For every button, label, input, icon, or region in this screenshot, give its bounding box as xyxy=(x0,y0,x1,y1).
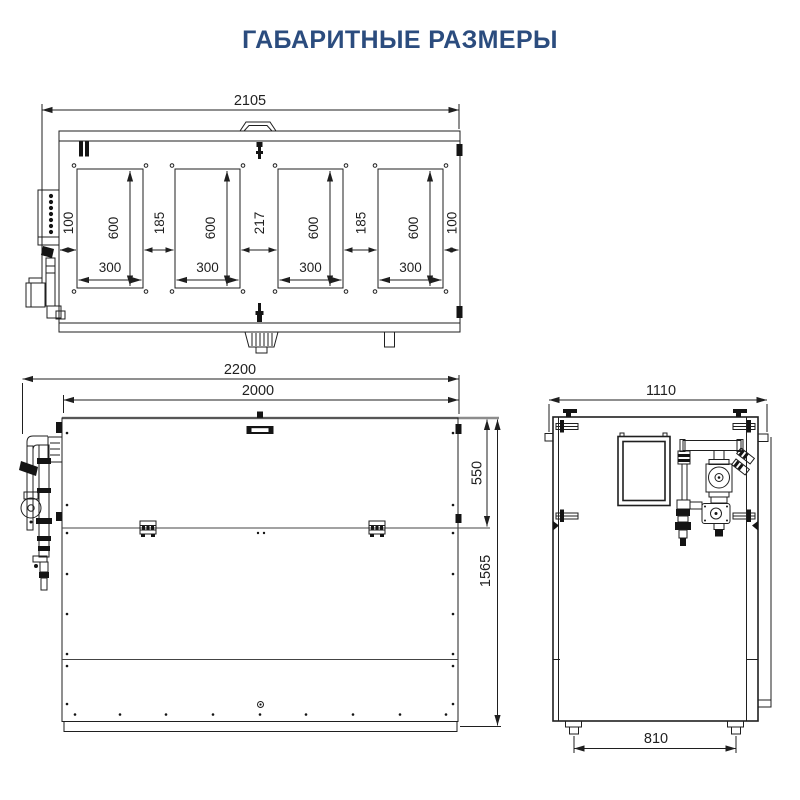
dim-label-550: 550 xyxy=(470,461,486,485)
dim-label-100: 100 xyxy=(445,212,460,235)
rear-stub xyxy=(758,700,771,707)
plinth xyxy=(64,722,457,732)
rear-tab xyxy=(758,434,768,442)
dim-label-185: 185 xyxy=(152,212,167,235)
burner-panel-1: 600 300 xyxy=(72,164,148,294)
dim-label-810: 810 xyxy=(644,731,668,747)
dim-label-600: 600 xyxy=(306,217,321,240)
dim-label-2000: 2000 xyxy=(242,383,274,399)
screw-dots xyxy=(66,432,455,716)
technical-drawing: 2105 xyxy=(0,0,800,800)
nameplate xyxy=(247,426,274,434)
dim-label-217: 217 xyxy=(252,212,267,235)
dim-label-2105: 2105 xyxy=(234,93,266,109)
dim-front-top-section: 550 xyxy=(470,420,488,527)
side-view: 1110 xyxy=(545,383,771,753)
dim-label-300: 300 xyxy=(99,260,122,275)
dim-label-1565: 1565 xyxy=(478,555,494,587)
burner-panel-4: 600 300 xyxy=(373,164,448,294)
dim-side-depth: 1110 xyxy=(549,383,767,432)
dim-front-overall: 2200 xyxy=(23,362,460,434)
side-body-outline xyxy=(553,417,758,721)
dim-side-feet: 810 xyxy=(574,731,736,753)
front-pump-assembly xyxy=(19,436,62,590)
dim-front-body: 2000 xyxy=(64,383,459,413)
handle-icon xyxy=(240,122,276,131)
flue-outlet xyxy=(245,332,278,353)
dim-top-overall: 2105 xyxy=(42,93,459,281)
front-body-outline xyxy=(62,418,458,722)
dim-label-300: 300 xyxy=(196,260,219,275)
hinge-left xyxy=(140,521,156,537)
front-tab xyxy=(545,434,553,442)
dimensions-drawing-page: ГАБАРИТНЫЕ РАЗМЕРЫ 2105 xyxy=(0,0,800,800)
side-pump-assembly xyxy=(675,440,754,547)
control-panel xyxy=(38,190,59,245)
lid-clamp-icons xyxy=(563,409,747,417)
dim-label-1110: 1110 xyxy=(646,383,676,399)
burner-panel-3: 600 300 xyxy=(273,164,348,294)
dim-label-600: 600 xyxy=(203,217,218,240)
inspection-window xyxy=(618,433,670,506)
hinge-right xyxy=(369,521,385,537)
front-view: 2200 2000 550 1565 xyxy=(19,362,501,732)
drain-hole xyxy=(258,702,264,708)
dim-label-600: 600 xyxy=(406,217,421,240)
dim-label-600: 600 xyxy=(106,217,121,240)
dim-label-300: 300 xyxy=(399,260,422,275)
edge-clip-icons xyxy=(56,422,462,523)
dim-label-185: 185 xyxy=(354,212,369,235)
dim-label-300: 300 xyxy=(299,260,322,275)
burner-panel-2: 600 300 xyxy=(170,164,245,294)
lid-latch-icon xyxy=(257,412,263,418)
pipe-stub xyxy=(385,332,395,347)
dim-label-2200: 2200 xyxy=(224,362,256,378)
top-view: 2105 xyxy=(26,93,463,353)
dim-label-100: 100 xyxy=(61,212,76,235)
